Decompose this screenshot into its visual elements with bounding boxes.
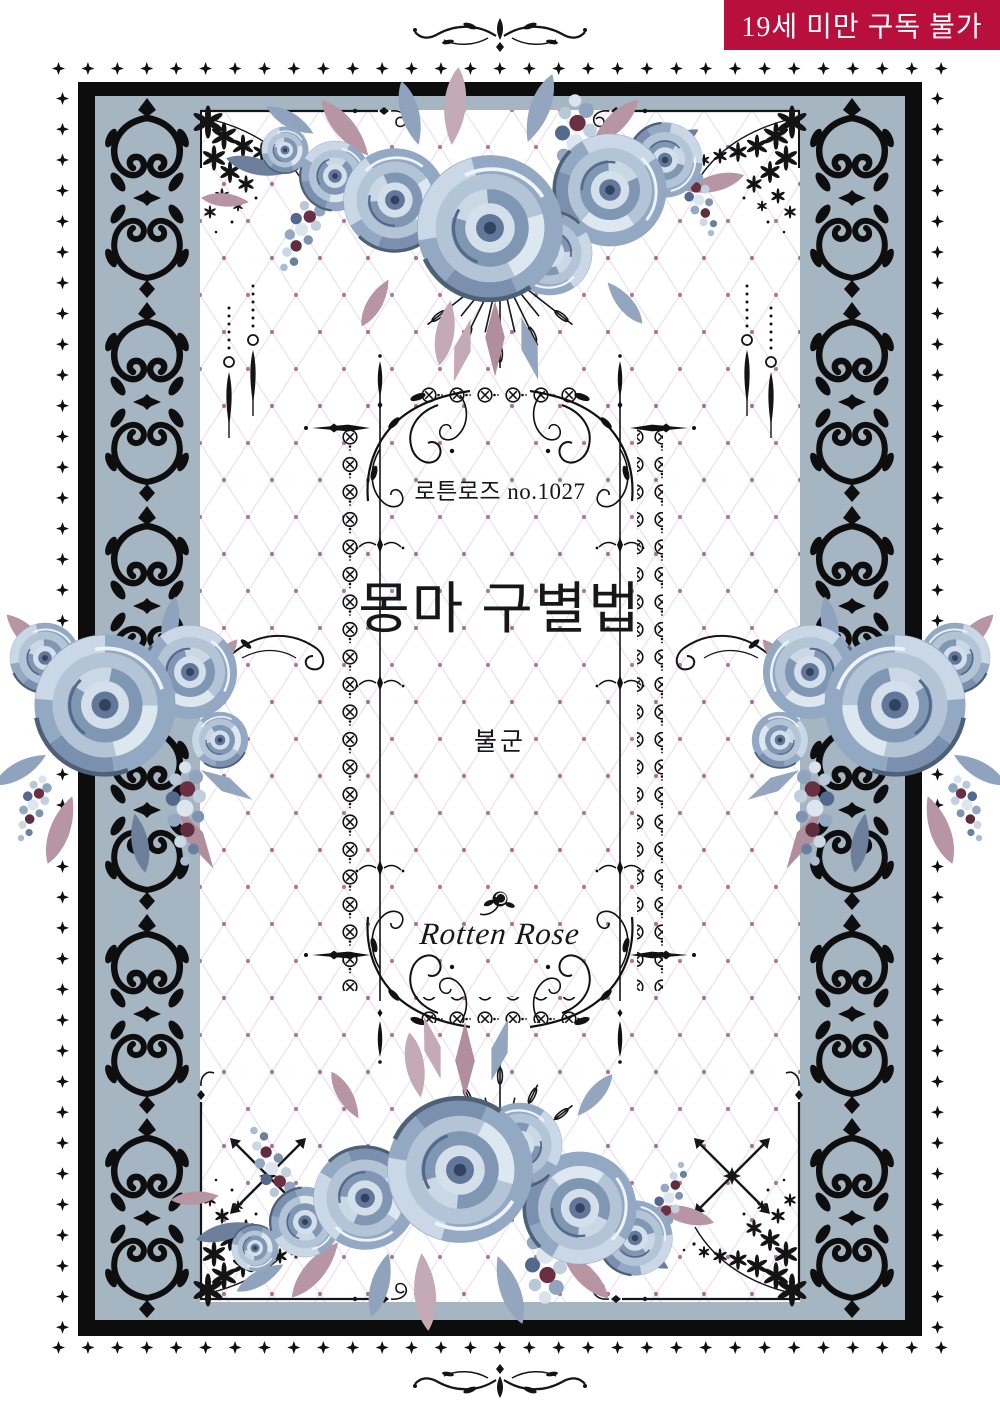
diamond-star-icon bbox=[931, 491, 944, 504]
diamond-star-icon bbox=[931, 1198, 944, 1211]
diamond-star-icon bbox=[56, 399, 69, 412]
diamond-star-icon bbox=[56, 1014, 69, 1027]
diamond-star-icon bbox=[931, 338, 944, 351]
diamond-star-icon bbox=[376, 1341, 389, 1354]
diamond-star-icon bbox=[758, 62, 771, 75]
diamond-star-icon bbox=[56, 983, 69, 996]
diamond-star-icon bbox=[111, 62, 124, 75]
diamond-star-icon bbox=[582, 62, 595, 75]
diamond-star-icon bbox=[931, 184, 944, 197]
diamond-star-icon bbox=[931, 1229, 944, 1242]
diamond-star-icon bbox=[931, 153, 944, 166]
diamond-star-icon bbox=[229, 62, 242, 75]
diamond-star-icon bbox=[876, 62, 889, 75]
diamond-star-icon bbox=[317, 62, 330, 75]
diamond-star-icon bbox=[287, 62, 300, 75]
diamond-star-icon bbox=[729, 1341, 742, 1354]
diamond-star-icon bbox=[931, 737, 944, 750]
diamond-star-icon bbox=[56, 153, 69, 166]
diamond-star-icon bbox=[56, 799, 69, 812]
diamond-star-icon bbox=[931, 799, 944, 812]
diamond-star-icon bbox=[931, 246, 944, 259]
diamond-star-icon bbox=[931, 307, 944, 320]
diamond-star-icon bbox=[405, 1341, 418, 1354]
diamond-star-icon bbox=[788, 1341, 801, 1354]
diamond-star-icon bbox=[170, 1341, 183, 1354]
diamond-star-icon bbox=[56, 338, 69, 351]
damask-ornament-right bbox=[800, 96, 905, 1320]
diamond-star-icon bbox=[434, 62, 447, 75]
diamond-star-icon bbox=[582, 1341, 595, 1354]
diamond-star-icon bbox=[56, 553, 69, 566]
diamond-star-icon bbox=[56, 430, 69, 443]
diamond-border-top bbox=[52, 62, 948, 75]
diamond-star-icon bbox=[670, 62, 683, 75]
diamond-star-icon bbox=[552, 62, 565, 75]
diamond-star-icon bbox=[258, 1341, 271, 1354]
diamond-star-icon bbox=[931, 1075, 944, 1088]
diamond-star-icon bbox=[56, 123, 69, 136]
diamond-star-icon bbox=[140, 62, 153, 75]
series-label: 로튼로즈 no.1027 bbox=[200, 472, 800, 506]
diamond-star-icon bbox=[56, 1106, 69, 1119]
diamond-star-icon bbox=[56, 1321, 69, 1334]
diamond-star-icon bbox=[931, 92, 944, 105]
diamond-star-icon bbox=[56, 829, 69, 842]
age-restriction-badge: 19세 미만 구독 불가 bbox=[724, 0, 1000, 50]
diamond-star-icon bbox=[611, 1341, 624, 1354]
diamond-star-icon bbox=[346, 1341, 359, 1354]
diamond-star-icon bbox=[464, 62, 477, 75]
diamond-star-icon bbox=[699, 1341, 712, 1354]
diamond-star-icon bbox=[817, 62, 830, 75]
diamond-star-icon bbox=[493, 62, 506, 75]
diamond-star-icon bbox=[931, 1044, 944, 1057]
diamond-star-icon bbox=[56, 1044, 69, 1057]
diamond-star-icon bbox=[56, 246, 69, 259]
diamond-star-icon bbox=[52, 62, 65, 75]
publisher-logo: Rotten Rose bbox=[200, 884, 800, 952]
diamond-star-icon bbox=[876, 1341, 889, 1354]
diamond-star-icon bbox=[81, 62, 94, 75]
diamond-star-icon bbox=[931, 829, 944, 842]
diamond-star-icon bbox=[434, 1341, 447, 1354]
diamond-star-icon bbox=[552, 1341, 565, 1354]
page-title: 몽마 구별법 bbox=[200, 564, 800, 645]
diamond-star-icon bbox=[523, 62, 536, 75]
diamond-star-icon bbox=[931, 215, 944, 228]
diamond-star-icon bbox=[935, 62, 948, 75]
diamond-star-icon bbox=[931, 522, 944, 535]
damask-ornament-left bbox=[95, 96, 200, 1320]
diamond-star-icon bbox=[56, 215, 69, 228]
diamond-star-icon bbox=[931, 461, 944, 474]
diamond-star-icon bbox=[229, 1341, 242, 1354]
diamond-star-icon bbox=[931, 645, 944, 658]
diamond-star-icon bbox=[81, 1341, 94, 1354]
diamond-star-icon bbox=[611, 62, 624, 75]
diamond-star-icon bbox=[493, 1341, 506, 1354]
diamond-star-icon bbox=[729, 62, 742, 75]
diamond-star-icon bbox=[640, 1341, 653, 1354]
diamond-star-icon bbox=[935, 1341, 948, 1354]
diamond-star-icon bbox=[905, 62, 918, 75]
diamond-star-icon bbox=[56, 368, 69, 381]
age-restriction-label: 19세 미만 구독 불가 bbox=[741, 5, 982, 45]
diamond-star-icon bbox=[931, 1167, 944, 1180]
diamond-star-icon bbox=[640, 62, 653, 75]
diamond-star-icon bbox=[699, 62, 712, 75]
diamond-star-icon bbox=[931, 921, 944, 934]
diamond-star-icon bbox=[170, 62, 183, 75]
diamond-star-icon bbox=[931, 1106, 944, 1119]
logo-text: Rotten Rose bbox=[418, 916, 582, 952]
diamond-star-icon bbox=[931, 430, 944, 443]
diamond-star-icon bbox=[464, 1341, 477, 1354]
diamond-star-icon bbox=[931, 860, 944, 873]
diamond-star-icon bbox=[56, 737, 69, 750]
diamond-star-icon bbox=[56, 1136, 69, 1149]
diamond-star-icon bbox=[317, 1341, 330, 1354]
diamond-star-icon bbox=[846, 62, 859, 75]
diamond-star-icon bbox=[56, 1259, 69, 1272]
center-ornate-frame bbox=[320, 353, 680, 1065]
diamond-star-icon bbox=[56, 921, 69, 934]
diamond-star-icon bbox=[788, 62, 801, 75]
diamond-star-icon bbox=[56, 92, 69, 105]
diamond-star-icon bbox=[258, 62, 271, 75]
diamond-star-icon bbox=[111, 1341, 124, 1354]
top-flourish-ornament bbox=[405, 10, 595, 58]
diamond-star-icon bbox=[817, 1341, 830, 1354]
diamond-star-icon bbox=[931, 123, 944, 136]
diamond-star-icon bbox=[56, 860, 69, 873]
diamond-star-icon bbox=[931, 399, 944, 412]
diamond-star-icon bbox=[52, 1341, 65, 1354]
diamond-star-icon bbox=[56, 307, 69, 320]
diamond-star-icon bbox=[376, 62, 389, 75]
diamond-border-bottom bbox=[52, 1341, 948, 1354]
diamond-star-icon bbox=[56, 584, 69, 597]
diamond-star-icon bbox=[199, 62, 212, 75]
diamond-star-icon bbox=[931, 706, 944, 719]
diamond-star-icon bbox=[56, 461, 69, 474]
diamond-star-icon bbox=[56, 676, 69, 689]
diamond-star-icon bbox=[287, 1341, 300, 1354]
diamond-star-icon bbox=[56, 891, 69, 904]
diamond-star-icon bbox=[670, 1341, 683, 1354]
diamond-star-icon bbox=[56, 706, 69, 719]
diamond-star-icon bbox=[846, 1341, 859, 1354]
diamond-star-icon bbox=[931, 1136, 944, 1149]
diamond-star-icon bbox=[56, 1075, 69, 1088]
diamond-star-icon bbox=[56, 952, 69, 965]
diamond-star-icon bbox=[931, 952, 944, 965]
diamond-star-icon bbox=[758, 1341, 771, 1354]
diamond-star-icon bbox=[56, 522, 69, 535]
diamond-star-icon bbox=[56, 491, 69, 504]
diamond-star-icon bbox=[931, 614, 944, 627]
diamond-star-icon bbox=[523, 1341, 536, 1354]
diamond-star-icon bbox=[56, 614, 69, 627]
diamond-star-icon bbox=[931, 676, 944, 689]
diamond-star-icon bbox=[56, 184, 69, 197]
diamond-star-icon bbox=[931, 368, 944, 381]
diamond-star-icon bbox=[931, 983, 944, 996]
bottom-flourish-ornament bbox=[405, 1358, 595, 1406]
diamond-star-icon bbox=[931, 553, 944, 566]
diamond-star-icon bbox=[56, 1290, 69, 1303]
diamond-star-icon bbox=[56, 1198, 69, 1211]
diamond-star-icon bbox=[931, 276, 944, 289]
diamond-border-left bbox=[56, 92, 69, 1334]
diamond-star-icon bbox=[56, 276, 69, 289]
diamond-border-right bbox=[931, 92, 944, 1334]
diamond-star-icon bbox=[346, 62, 359, 75]
diamond-star-icon bbox=[56, 1229, 69, 1242]
author-name: 불군 bbox=[200, 722, 800, 758]
diamond-star-icon bbox=[140, 1341, 153, 1354]
diamond-star-icon bbox=[931, 891, 944, 904]
diamond-star-icon bbox=[931, 1290, 944, 1303]
book-cover: 19세 미만 구독 불가 bbox=[0, 0, 1000, 1414]
diamond-star-icon bbox=[56, 1167, 69, 1180]
diamond-star-icon bbox=[199, 1341, 212, 1354]
diamond-star-icon bbox=[931, 1321, 944, 1334]
logo-rose-icon bbox=[475, 884, 525, 914]
diamond-star-icon bbox=[931, 768, 944, 781]
diamond-star-icon bbox=[56, 768, 69, 781]
diamond-star-icon bbox=[931, 584, 944, 597]
diamond-star-icon bbox=[56, 645, 69, 658]
diamond-star-icon bbox=[931, 1014, 944, 1027]
diamond-star-icon bbox=[931, 1259, 944, 1272]
diamond-star-icon bbox=[405, 62, 418, 75]
diamond-star-icon bbox=[905, 1341, 918, 1354]
